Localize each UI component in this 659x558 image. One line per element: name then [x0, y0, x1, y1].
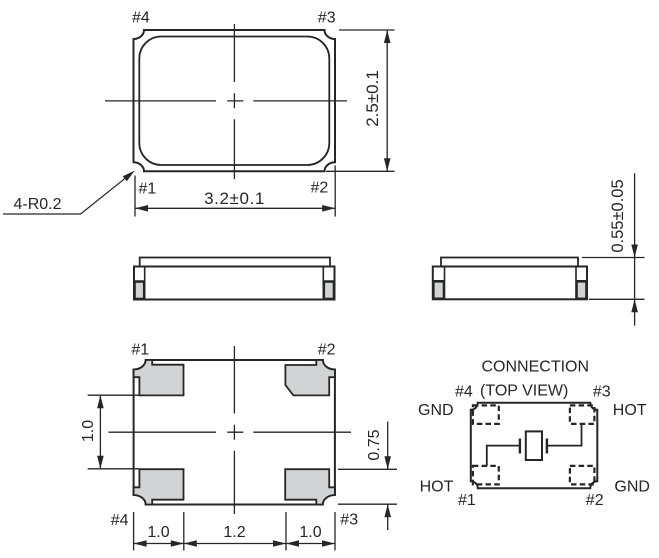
svg-text:#4: #4	[111, 512, 129, 529]
svg-text:#1: #1	[139, 180, 157, 197]
svg-text:2.5±0.1: 2.5±0.1	[363, 70, 382, 127]
svg-text:HOT: HOT	[613, 402, 647, 419]
svg-text:#4: #4	[455, 384, 473, 401]
svg-text:#1: #1	[458, 492, 476, 509]
svg-text:#3: #3	[318, 10, 336, 27]
svg-text:#3: #3	[340, 512, 358, 529]
svg-text:4-R0.2: 4-R0.2	[14, 196, 62, 213]
svg-text:CONNECTION: CONNECTION	[482, 359, 590, 376]
svg-text:GND: GND	[614, 478, 650, 495]
svg-text:(TOP VIEW): (TOP VIEW)	[480, 383, 568, 400]
svg-text:#2: #2	[318, 342, 336, 359]
svg-text:1.2: 1.2	[223, 524, 245, 541]
svg-text:1.0: 1.0	[80, 420, 97, 442]
svg-text:#4: #4	[132, 10, 150, 27]
svg-text:#3: #3	[593, 384, 611, 401]
svg-text:#2: #2	[586, 492, 604, 509]
svg-text:3.2±0.1: 3.2±0.1	[204, 189, 265, 208]
svg-text:HOT: HOT	[420, 478, 454, 495]
svg-text:GND: GND	[418, 402, 454, 419]
svg-text:#1: #1	[131, 341, 149, 358]
svg-text:#2: #2	[311, 180, 329, 197]
svg-text:0.55±0.05: 0.55±0.05	[609, 179, 627, 252]
svg-text:1.0: 1.0	[147, 524, 169, 541]
svg-text:0.75: 0.75	[366, 429, 383, 460]
svg-text:1.0: 1.0	[299, 524, 321, 541]
